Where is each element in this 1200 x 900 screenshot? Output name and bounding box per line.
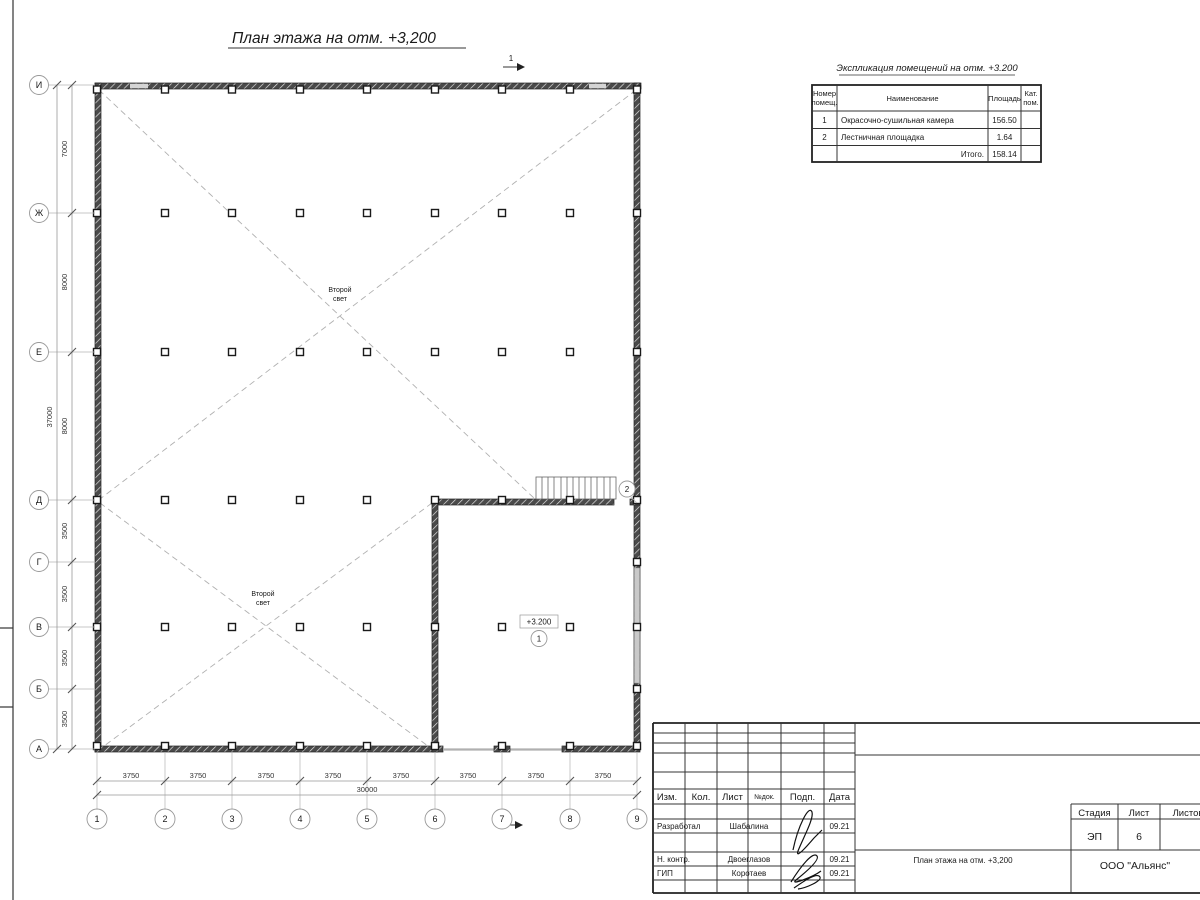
svg-text:помещ.: помещ. bbox=[812, 98, 838, 107]
second-light-label-upper: Второй свет bbox=[328, 286, 351, 303]
room-number-1: 1 bbox=[531, 631, 547, 647]
svg-text:9: 9 bbox=[634, 814, 639, 824]
svg-text:Номер: Номер bbox=[813, 89, 836, 98]
tb-col-list: Лист bbox=[722, 792, 743, 803]
schedule-total-row: Итого. 158.14 bbox=[961, 150, 1017, 159]
svg-text:8: 8 bbox=[567, 814, 572, 824]
second-light-label-lower: Второй свет bbox=[251, 590, 274, 607]
svg-text:2: 2 bbox=[625, 485, 630, 494]
floor-plan-drawing: План этажа на отм. +3,200 1 1 bbox=[0, 0, 1200, 900]
svg-text:6: 6 bbox=[432, 814, 437, 824]
svg-text:А: А bbox=[36, 744, 42, 754]
page-title: План этажа на отм. +3,200 bbox=[232, 30, 436, 47]
tb-row-developer: Разработал Шабалина 09.21 bbox=[657, 822, 850, 831]
tb-col-podp: Подп. bbox=[790, 792, 815, 803]
columns bbox=[94, 86, 641, 750]
svg-text:Н. контр.: Н. контр. bbox=[657, 855, 690, 864]
svg-text:Б: Б bbox=[36, 684, 42, 694]
tb-stage-value: ЭП bbox=[1087, 831, 1102, 843]
svg-text:2: 2 bbox=[822, 133, 827, 142]
svg-text:1: 1 bbox=[822, 116, 827, 125]
svg-text:2: 2 bbox=[162, 814, 167, 824]
svg-text:В: В bbox=[36, 622, 42, 632]
tb-sheet-label: Лист bbox=[1129, 808, 1150, 819]
svg-text:Ж: Ж bbox=[35, 208, 44, 218]
svg-text:3500: 3500 bbox=[60, 650, 69, 667]
tb-col-kol: Кол. bbox=[692, 792, 711, 803]
svg-text:3500: 3500 bbox=[60, 586, 69, 603]
svg-text:Наименование: Наименование bbox=[887, 94, 939, 103]
svg-text:Коротаев: Коротаев bbox=[732, 869, 767, 878]
svg-text:И: И bbox=[36, 80, 42, 90]
svg-text:3750: 3750 bbox=[528, 771, 545, 780]
svg-text:09.21: 09.21 bbox=[829, 869, 850, 878]
svg-text:3750: 3750 bbox=[258, 771, 275, 780]
interior-wall-horizontal bbox=[432, 499, 614, 505]
svg-text:1: 1 bbox=[537, 635, 542, 644]
room-schedule: Экспликация помещений на отм. +3.200 Ном… bbox=[812, 63, 1041, 162]
svg-text:Е: Е bbox=[36, 347, 42, 357]
svg-text:свет: свет bbox=[333, 296, 348, 303]
svg-text:3750: 3750 bbox=[190, 771, 207, 780]
svg-text:4: 4 bbox=[297, 814, 302, 824]
svg-text:Г: Г bbox=[37, 557, 42, 567]
second-light-diagonals bbox=[99, 90, 636, 749]
svg-text:Второй: Второй bbox=[328, 286, 351, 294]
tb-doc-title: План этажа на отм. +3,200 bbox=[913, 856, 1013, 865]
tb-row-gip: ГИП Коротаев 09.21 bbox=[657, 869, 850, 878]
svg-text:ГИП: ГИП bbox=[657, 869, 673, 878]
svg-text:Кат.: Кат. bbox=[1024, 89, 1037, 98]
svg-text:3750: 3750 bbox=[325, 771, 342, 780]
sheet-frame bbox=[0, 0, 13, 900]
left-dimensions: 7000 8000 8000 3500 3500 3500 3500 37000 bbox=[45, 81, 95, 753]
walls bbox=[95, 83, 641, 752]
stairs bbox=[536, 477, 616, 499]
top-wall-opening bbox=[130, 84, 148, 89]
bottom-axis-bubbles: 1 2 3 4 5 6 7 8 9 bbox=[87, 809, 647, 829]
tb-col-ndok: №док. bbox=[754, 794, 775, 801]
svg-text:3500: 3500 bbox=[60, 711, 69, 728]
svg-text:3: 3 bbox=[229, 814, 234, 824]
svg-text:Итого.: Итого. bbox=[961, 150, 984, 159]
top-wall-opening bbox=[589, 84, 606, 89]
svg-text:3500: 3500 bbox=[60, 523, 69, 540]
svg-text:156.50: 156.50 bbox=[992, 116, 1017, 125]
section-mark-top: 1 bbox=[503, 54, 525, 71]
svg-text:09.21: 09.21 bbox=[829, 855, 850, 864]
drawing-sheet: План этажа на отм. +3,200 1 1 bbox=[0, 0, 1200, 900]
svg-text:Двоеглазов: Двоеглазов bbox=[728, 855, 771, 864]
svg-text:1: 1 bbox=[94, 814, 99, 824]
svg-text:Лестничная площадка: Лестничная площадка bbox=[841, 133, 925, 142]
svg-text:3750: 3750 bbox=[460, 771, 477, 780]
svg-text:+3.200: +3.200 bbox=[527, 618, 552, 627]
tb-stage-label: Стадия bbox=[1078, 808, 1110, 819]
svg-text:8000: 8000 bbox=[60, 274, 69, 291]
svg-text:5: 5 bbox=[364, 814, 369, 824]
svg-text:Площадь: Площадь bbox=[988, 94, 1021, 103]
svg-text:Окрасочно-сушильная камера: Окрасочно-сушильная камера bbox=[841, 116, 954, 125]
svg-text:Шабалина: Шабалина bbox=[730, 822, 769, 831]
svg-text:Разработал: Разработал bbox=[657, 822, 701, 831]
tb-row-ncontrol: Н. контр. Двоеглазов 09.21 bbox=[657, 855, 850, 864]
svg-text:Второй: Второй bbox=[251, 590, 274, 598]
elevation-mark: +3.200 bbox=[520, 615, 558, 628]
tb-company: ООО "Альянс" bbox=[1100, 860, 1170, 872]
tb-sheets-label: Листов bbox=[1173, 808, 1200, 819]
svg-text:свет: свет bbox=[256, 600, 271, 607]
svg-text:1.64: 1.64 bbox=[997, 133, 1013, 142]
svg-text:пом.: пом. bbox=[1023, 98, 1038, 107]
signatures bbox=[791, 810, 822, 889]
svg-text:37000: 37000 bbox=[45, 407, 54, 428]
svg-text:8000: 8000 bbox=[60, 418, 69, 435]
svg-text:3750: 3750 bbox=[123, 771, 140, 780]
schedule-title: Экспликация помещений на отм. +3.200 bbox=[836, 63, 1018, 74]
tb-col-data: Дата bbox=[829, 792, 851, 803]
tb-col-izm: Изм. bbox=[657, 792, 677, 803]
svg-text:7: 7 bbox=[499, 814, 504, 824]
svg-text:09.21: 09.21 bbox=[829, 822, 850, 831]
svg-text:Д: Д bbox=[36, 495, 42, 505]
svg-text:158.14: 158.14 bbox=[992, 150, 1017, 159]
tb-sheet-value: 6 bbox=[1136, 831, 1142, 843]
svg-text:7000: 7000 bbox=[60, 141, 69, 158]
svg-text:3750: 3750 bbox=[595, 771, 612, 780]
svg-text:1: 1 bbox=[509, 54, 514, 63]
title-block: Изм. Кол. Лист №док. Подп. Дата Разработ… bbox=[653, 723, 1200, 893]
schedule-row-2: 2 Лестничная площадка 1.64 bbox=[822, 133, 1013, 142]
bottom-dimensions: 3750 3750 3750 3750 3750 3750 3750 3750 … bbox=[93, 752, 641, 809]
svg-text:3750: 3750 bbox=[393, 771, 410, 780]
svg-text:30000: 30000 bbox=[357, 785, 378, 794]
